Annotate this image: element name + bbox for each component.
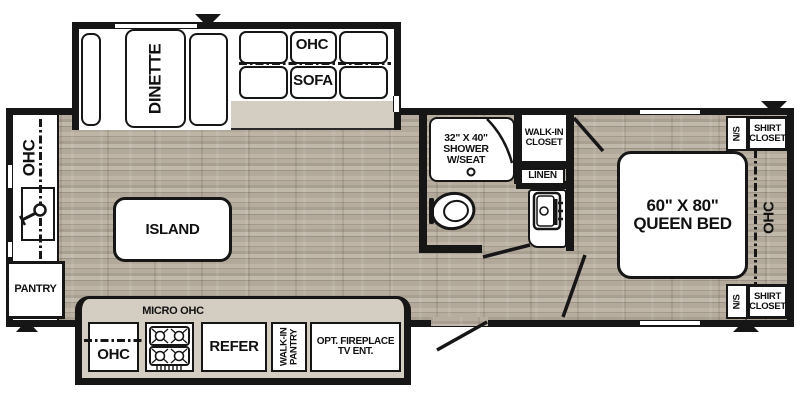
slide-marker-front-icon (16, 320, 38, 332)
vanity-sink-icon (534, 193, 563, 229)
door-swing-bedroom-icon (563, 255, 585, 317)
door-swing-entry-icon (437, 322, 487, 350)
toilet-icon (429, 190, 477, 232)
slide-marker-bedroom-bottom-icon (733, 319, 759, 332)
shower-drain-icon (468, 169, 475, 176)
kitchen-faucet-icon (20, 205, 46, 226)
shower-curtain-icon (487, 119, 512, 163)
stove-burners-icon (150, 327, 189, 371)
slide-marker-bedroom-top-icon (761, 101, 787, 114)
floorplan-canvas: DINETTE OHC SOFA OHC PANTRY ISLAND MICRO… (0, 0, 800, 400)
door-swing-bathroom-icon (483, 245, 530, 257)
door-swing-closet-icon (574, 118, 603, 151)
slide-marker-top-icon (195, 14, 221, 27)
